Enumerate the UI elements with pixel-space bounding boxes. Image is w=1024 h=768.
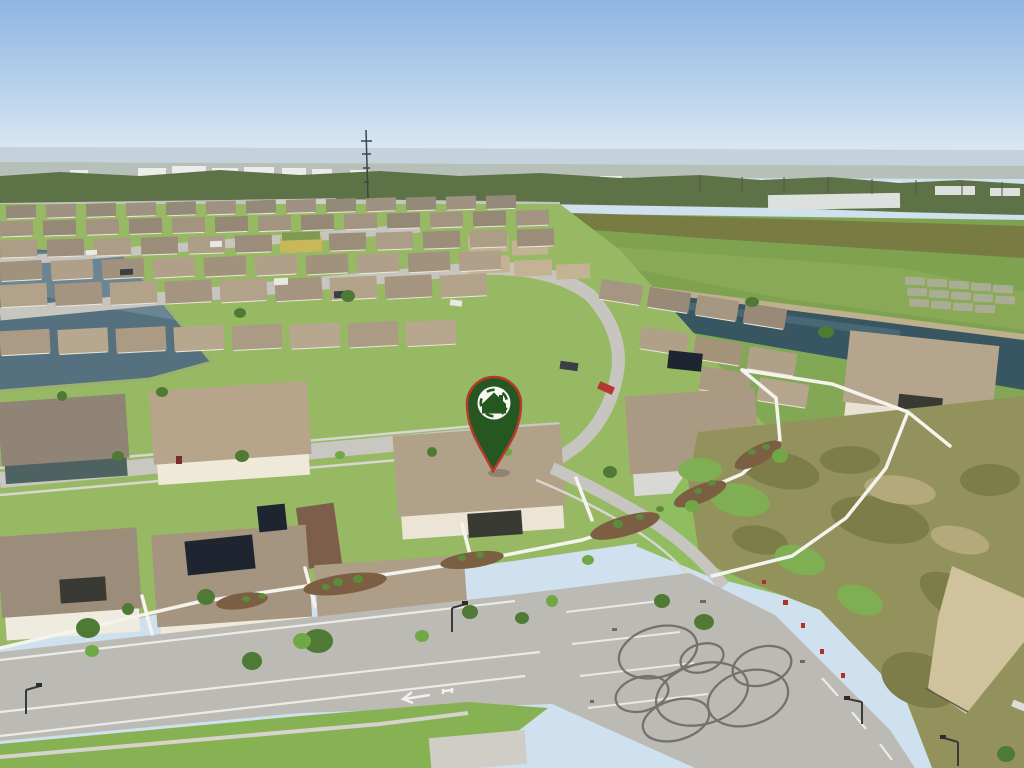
house: [46, 204, 76, 219]
house: [0, 260, 43, 282]
house: [0, 329, 51, 357]
house: [215, 216, 249, 233]
house: [326, 198, 356, 213]
house: [47, 238, 85, 257]
house: [366, 197, 396, 212]
house: [286, 199, 316, 214]
house: [231, 324, 282, 352]
house: [126, 202, 156, 217]
house: [246, 200, 276, 215]
house: [473, 211, 507, 228]
house-large: [0, 394, 131, 485]
house: [405, 320, 456, 348]
house: [51, 259, 94, 281]
house: [306, 253, 349, 275]
house: [204, 256, 247, 278]
house: [408, 251, 451, 273]
house: [376, 231, 414, 250]
house: [57, 327, 108, 355]
house-large: [149, 381, 313, 486]
terrain-and-buildings: [0, 130, 1024, 768]
aerial-scene: [0, 0, 1024, 768]
house: [470, 229, 508, 248]
house: [86, 219, 120, 236]
house: [384, 274, 432, 299]
house: [94, 237, 132, 256]
house: [102, 258, 145, 280]
house: [0, 239, 37, 258]
house: [255, 254, 298, 276]
amenity-building-roof: [282, 231, 320, 240]
house: [258, 215, 292, 232]
house: [206, 200, 236, 215]
aerial-photo: [0, 0, 1024, 768]
house: [301, 214, 335, 231]
house: [172, 217, 206, 234]
house: [0, 283, 48, 308]
house: [235, 234, 273, 253]
sky: [0, 0, 1024, 168]
house: [347, 321, 398, 349]
house: [173, 325, 224, 353]
house: [446, 196, 476, 211]
house: [115, 326, 166, 354]
house: [164, 279, 212, 304]
house: [289, 322, 340, 350]
house: [109, 280, 157, 305]
house: [517, 228, 555, 247]
house: [486, 195, 516, 210]
house: [54, 282, 102, 307]
house: [86, 203, 116, 218]
house: [6, 204, 36, 219]
house: [219, 278, 267, 303]
house: [43, 220, 77, 237]
house: [439, 273, 487, 298]
house: [430, 211, 464, 228]
house: [0, 220, 33, 237]
house: [459, 250, 502, 272]
house: [329, 232, 367, 251]
house: [344, 213, 378, 230]
house: [166, 201, 196, 216]
house: [423, 230, 461, 249]
house: [153, 257, 196, 279]
house: [129, 218, 163, 235]
house: [141, 236, 179, 255]
house: [387, 212, 421, 229]
house: [516, 210, 550, 227]
trash-bin: [176, 456, 182, 464]
house: [406, 196, 436, 211]
house: [357, 252, 400, 274]
